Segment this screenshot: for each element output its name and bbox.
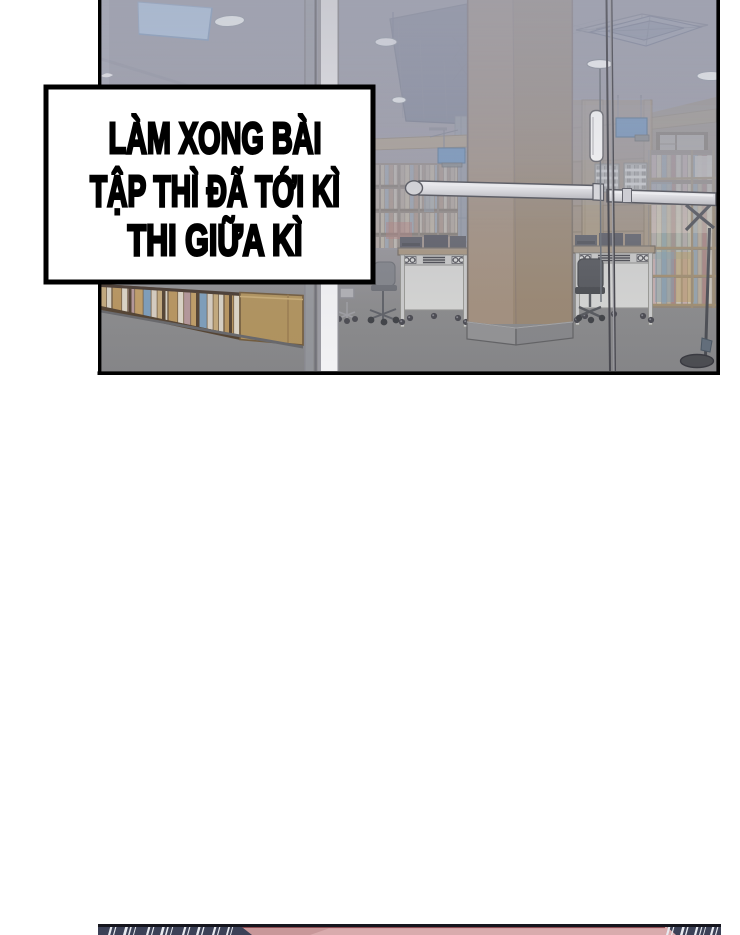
svg-text:THI GIỮA KÌ: THI GIỮA KÌ: [128, 215, 303, 265]
svg-text:LÀM XONG BÀI: LÀM XONG BÀI: [109, 113, 322, 163]
svg-text:TẬP THÌ ĐÃ TỚI KÌ: TẬP THÌ ĐÃ TỚI KÌ: [90, 166, 340, 216]
